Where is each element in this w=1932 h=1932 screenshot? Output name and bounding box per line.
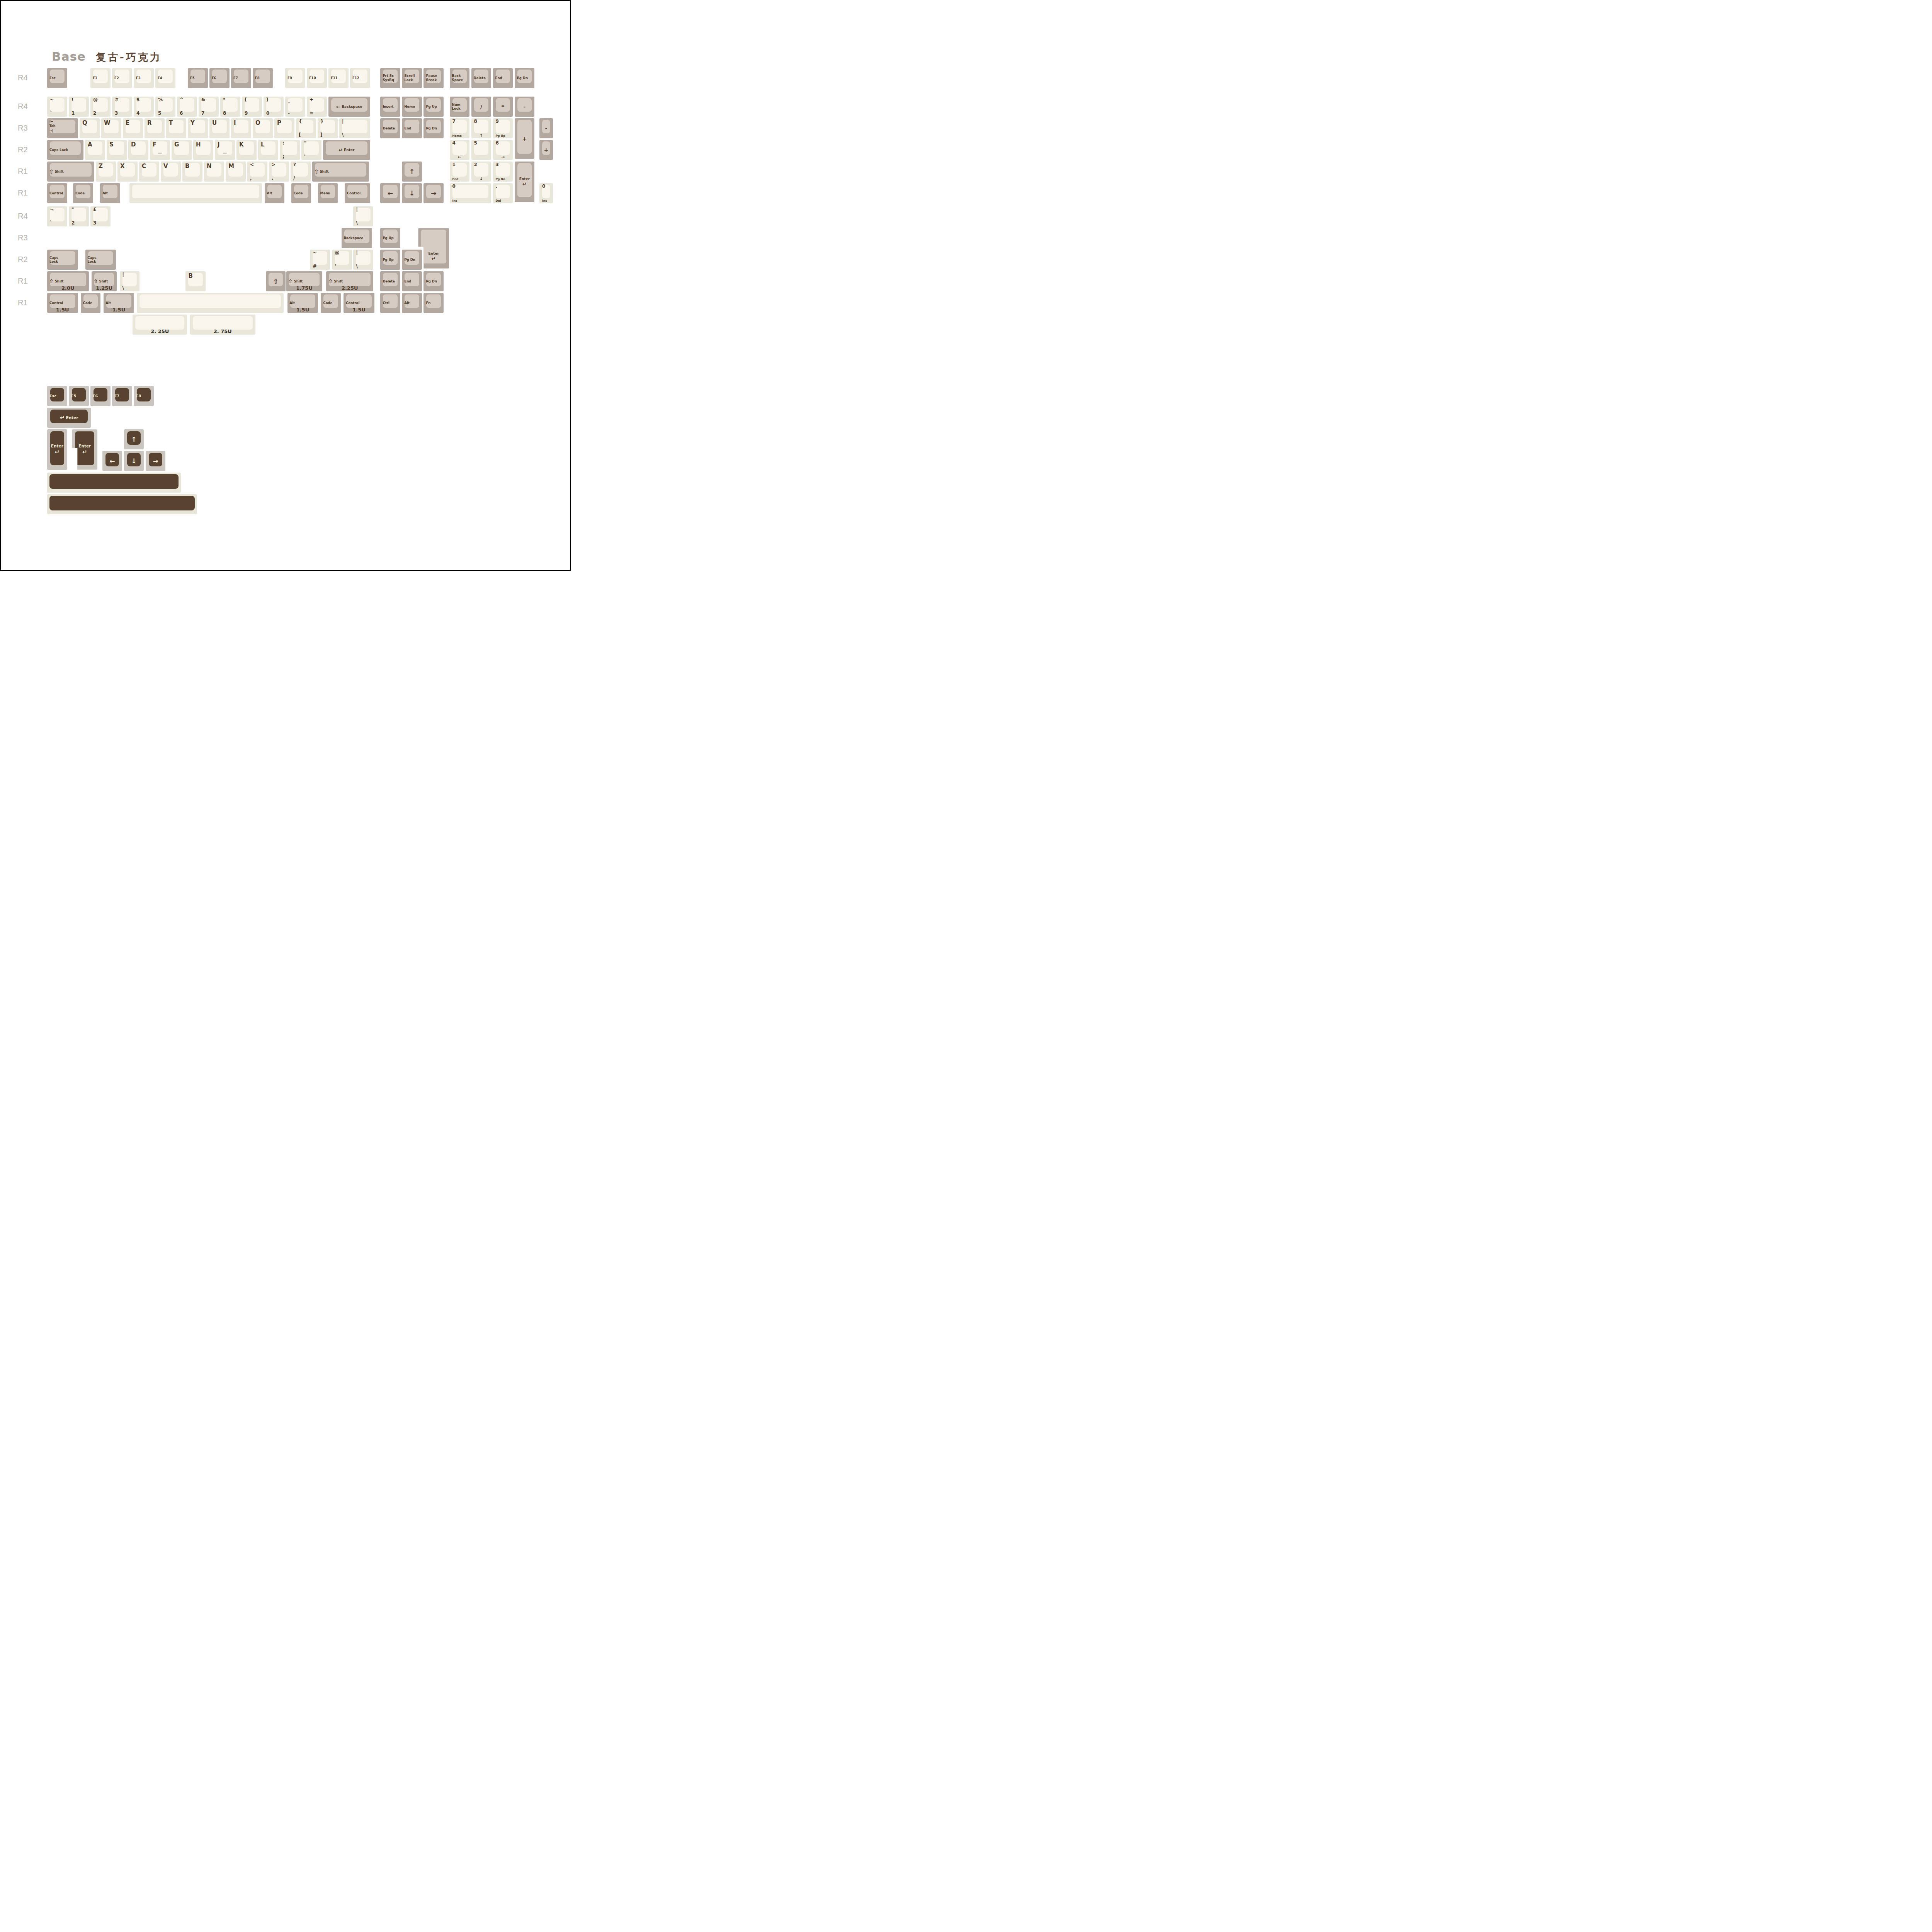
key-kp8: 8↑ [471, 118, 492, 138]
keycap-set-sheet: Base复古-巧克力 R4R4R3R2R1R1R4R3R2R1R1 EscF1F… [0, 0, 571, 571]
key-legend: M [226, 162, 246, 182]
key-legend: " [304, 140, 306, 146]
key-legend: * [493, 97, 513, 117]
key-legend: T [166, 118, 186, 138]
key-f2: F2 [112, 68, 132, 88]
key-legend: End [402, 271, 422, 291]
key-legend: ⇧ [49, 168, 54, 175]
key-legend: ! [71, 97, 73, 102]
key-legend: | [356, 250, 357, 255]
key-legend: 4 [452, 140, 456, 146]
key-alt-1u: Alt [402, 293, 422, 313]
key-legend: Pg Dn [515, 68, 535, 88]
key-legend: ↓ [124, 451, 144, 471]
key-legend: 1 [452, 162, 456, 167]
key-legend: ] [320, 132, 322, 138]
key-dark-esc: Esc [47, 386, 67, 406]
key-legend: 6 [496, 140, 499, 146]
key-legend: £ [93, 207, 96, 212]
key-f3: F3 [134, 68, 154, 88]
key-kp-dot: .Del [493, 183, 513, 203]
key-c: C [139, 162, 159, 182]
key-legend: D [128, 140, 148, 160]
key-rshift: ⇧Shift [312, 162, 369, 182]
key-insert: Insert [380, 97, 400, 117]
key-extra-caps-2: Caps Lock [85, 250, 116, 270]
key-kp5: 5 [471, 140, 492, 160]
key-legend: 5 [471, 140, 492, 160]
key-e: E [123, 118, 143, 138]
key-lctrl: Control [47, 183, 67, 203]
key-legend: Pg Dn [496, 177, 505, 181]
key-rbracket: }] [318, 118, 338, 138]
key-legend: ^6 [177, 97, 197, 117]
key-shift-glyph: ⇧ [266, 271, 286, 291]
key-legend: Fn [423, 293, 444, 313]
key-legend: Y [188, 118, 208, 138]
key-legend: (9 [242, 97, 262, 117]
key-o: O [253, 118, 273, 138]
key-b: B [182, 162, 202, 182]
key-legend: → [146, 451, 166, 471]
key-legend: → [501, 155, 505, 160]
key-num-5: %5 [155, 97, 175, 117]
key-d: D [128, 140, 148, 160]
key-legend: N [204, 162, 224, 182]
key-f10: F10 [307, 68, 327, 88]
key-shift-125u: ⇧Shift1.25U [92, 271, 117, 291]
key-f9: F9 [285, 68, 305, 88]
key-legend: → [423, 183, 444, 203]
key-legend: ⇧ [94, 278, 98, 284]
key-s: S [107, 140, 127, 160]
key-legend: 3Pg Dn [493, 162, 513, 182]
key-rctrl: Control [345, 183, 370, 203]
key-legend: ←Backspace [328, 97, 370, 117]
key-kp0: 0Ins [450, 183, 492, 203]
key-grave: ~` [47, 97, 67, 117]
key-legend: 1End [450, 162, 470, 182]
key-legend: = [310, 111, 313, 116]
key-legend: 7 [201, 111, 204, 116]
key-legend: ↵ [60, 414, 65, 421]
key-legend: 9Pg Up [493, 118, 513, 138]
key-legend: Enter [66, 415, 78, 420]
key-iso-pound-3: £3 [90, 206, 111, 226]
key-legend: @' [332, 250, 352, 270]
key-legend: ¬ [50, 207, 54, 212]
key-legend: Home [402, 97, 422, 117]
key-legend: / [293, 175, 295, 181]
key-y: Y [188, 118, 208, 138]
key-extra-end: End [402, 271, 422, 291]
key-legend: &7 [199, 97, 219, 117]
key-legend: ' [304, 154, 306, 159]
key-spacebar-225u: 2. 25U [133, 315, 187, 335]
key-legend: |\ [353, 206, 373, 226]
row-label-r1: R1 [18, 167, 28, 176]
key-legend: Pg Dn [402, 250, 422, 270]
key-arrow-up: ↑ [402, 162, 422, 182]
key-size-label: 1.5U [344, 307, 374, 313]
key-print-screen: Prt Sc SysRq [380, 68, 400, 88]
key-legend: ↵ [432, 256, 436, 262]
key-ctrl-15u-right: Control1.5U [344, 293, 374, 313]
key-legend: %5 [155, 97, 175, 117]
key-extra-pgdn-r2: Pg Dn [402, 250, 422, 270]
key-kp-multiply: * [493, 97, 513, 117]
key-q: Q [80, 118, 100, 138]
key-n: N [204, 162, 224, 182]
key-v: V [161, 162, 181, 182]
key-legend: ← [336, 104, 340, 110]
key-legend: 1 [71, 111, 75, 116]
key-legend: 0 [452, 184, 456, 189]
key-shift-175u: ⇧Shift1.75U [286, 271, 323, 291]
key-legend: Enter [344, 148, 354, 152]
key-dark-f8: F8 [134, 386, 154, 406]
key-legend: 4← [450, 140, 470, 160]
key-legend: Pg Up [423, 97, 444, 117]
key-extra-caps-1: Caps Lock [47, 250, 78, 270]
key-code-left: Code [81, 293, 101, 313]
key-kp-divide: / [471, 97, 492, 117]
key-legend: Del [496, 199, 501, 202]
row-label-r2: R2 [18, 255, 28, 264]
key-f4: F4 [155, 68, 175, 88]
key-legend: $ [136, 97, 139, 102]
key-legend: += [307, 97, 327, 117]
key-lshift: ⇧Shift [47, 162, 94, 182]
key-legend: 9 [496, 119, 499, 124]
key-pgdn-top: Pg Dn [515, 68, 535, 88]
key-legend: 3 [93, 220, 96, 226]
key-legend: K [236, 140, 257, 160]
key-legend: Alt [265, 183, 285, 203]
key-lbracket: {[ [296, 118, 316, 138]
key-legend: 4 [136, 111, 139, 116]
key-legend: ↓ [402, 183, 422, 203]
key-legend: Q [80, 118, 100, 138]
key-legend: !1 [69, 97, 89, 117]
key-legend: Backspace [342, 228, 372, 248]
key-legend: \ [356, 264, 357, 269]
key-size-label: 2. 75U [190, 329, 255, 335]
key-legend: 2 [71, 220, 75, 226]
key-g: G [172, 140, 192, 160]
key-h: H [193, 140, 213, 160]
key-legend: Shift [99, 279, 108, 283]
key-legend: H [193, 140, 213, 160]
key-legend: Enter [429, 252, 439, 255]
key-legend: Shift [320, 170, 329, 173]
key-legend: "2 [69, 206, 89, 226]
key-legend: Control [345, 183, 370, 203]
key-legend: - [515, 97, 535, 117]
key-legend: 9 [245, 111, 248, 116]
key-f11: F11 [328, 68, 349, 88]
row-label-r1: R1 [18, 277, 28, 286]
key-legend: ~ [50, 97, 54, 102]
key-legend: Code [291, 183, 311, 203]
key-legend: "' [301, 140, 321, 160]
key-legend: . [496, 184, 498, 189]
key-dark-f7: F7 [112, 386, 132, 406]
row-label-r3: R3 [18, 233, 28, 242]
key-kp4: 4← [450, 140, 470, 160]
key-enter: ↵Enter [323, 140, 370, 160]
key-legend: ) [266, 97, 268, 102]
key-legend: Ins [452, 199, 457, 202]
key-legend [129, 183, 262, 203]
key-legend: ↵ [522, 181, 527, 187]
key-legend: 6 [180, 111, 183, 116]
key-dark-spacebar-625u [47, 473, 181, 493]
key-esc: Esc [47, 68, 67, 88]
key-legend: 5 [158, 111, 161, 116]
key-kp-subtract: - [515, 97, 535, 117]
key-spacebar [129, 183, 262, 203]
key-extra-pipe-r4: |\ [353, 206, 373, 226]
key-pgup: Pg Up [423, 97, 444, 117]
key-lcode: Code [73, 183, 93, 203]
key-t: T [166, 118, 186, 138]
key-legend: Alt [100, 183, 120, 203]
key-num-lock: Num Lock [450, 97, 470, 117]
key-legend: + [539, 140, 553, 160]
key-delete: Delete [380, 118, 400, 138]
key-legend: \ [356, 220, 357, 226]
key-legend: & [201, 97, 205, 102]
key-legend: Enter [51, 444, 63, 448]
key-legend: @2 [90, 97, 111, 117]
key-kp9: 9Pg Up [493, 118, 513, 138]
key-f7: F7 [231, 68, 251, 88]
key-extra-b: B [185, 271, 206, 291]
key-a: A [85, 140, 105, 160]
key-legend: _ [288, 97, 290, 102]
key-minus: _- [285, 97, 305, 117]
row-label-r1: R1 [18, 189, 28, 197]
key-f5: F5 [188, 68, 208, 88]
key-legend: * [223, 97, 225, 102]
key-legend: I [231, 118, 251, 138]
key-legend: E [123, 118, 143, 138]
key-code-right: Code [321, 293, 341, 313]
key-arrow-right: → [423, 183, 444, 203]
key-extra-pgdn-r1: Pg Dn [423, 271, 444, 291]
key-legend: | [122, 272, 124, 277]
key-f12: F12 [350, 68, 370, 88]
key-legend [47, 473, 181, 493]
key-legend: *8 [220, 97, 240, 117]
key-legend: {[ [296, 118, 316, 138]
key-legend: : [282, 140, 284, 146]
key-legend: End [452, 177, 459, 181]
key-legend: ( [245, 97, 247, 102]
key-legend: Caps Lock [47, 250, 78, 270]
key-num-7: &7 [199, 97, 219, 117]
key-kp2: 2↓ [471, 162, 492, 182]
key-ralt: Alt [265, 183, 285, 203]
key-legend: / [471, 97, 492, 117]
key-legend: 0 [542, 184, 545, 189]
key-extra-pipe-r2: |\ [353, 250, 373, 270]
key-iso-not-grave: ¬` [47, 206, 67, 226]
key-legend: Delete [380, 118, 400, 138]
key-rcode: Code [291, 183, 311, 203]
key-legend: End [402, 118, 422, 138]
key-legend: ; [282, 154, 284, 159]
key-kp3: 3Pg Dn [493, 162, 513, 182]
key-legend: ~` [47, 97, 67, 117]
key-end: End [402, 118, 422, 138]
key-tab: |←Tab→| [47, 118, 78, 138]
key-legend: # [313, 264, 316, 269]
key-f6: F6 [209, 68, 230, 88]
row-label-r4: R4 [18, 212, 28, 221]
key-legend: Menu [318, 183, 338, 203]
key-legend: } [320, 119, 324, 124]
key-comma: <, [247, 162, 267, 182]
key-legend: Shift [294, 279, 303, 283]
key-legend: Pause Break [423, 68, 444, 88]
key-backspace: ←Backspace [328, 97, 370, 117]
key-legend: Caps Lock [85, 250, 116, 270]
key-num-6: ^6 [177, 97, 197, 117]
key-legend: |\ [353, 250, 373, 270]
key-legend: F12 [350, 68, 370, 88]
key-legend: Ins [542, 199, 547, 202]
key-legend: }] [318, 118, 338, 138]
key-legend: 7 [452, 119, 456, 124]
key-backslash: |\ [339, 118, 370, 138]
key-u: U [209, 118, 230, 138]
key-z: Z [96, 162, 116, 182]
key-legend: ⇧Shift [312, 162, 369, 182]
key-legend: 2 [93, 111, 96, 116]
key-legend: 0Ins [539, 183, 553, 203]
key-legend: ↵ [82, 449, 87, 456]
key-legend: |\ [120, 271, 140, 291]
key-legend: F4 [155, 68, 175, 88]
key-legend: B [185, 271, 206, 291]
key-x: X [117, 162, 138, 182]
key-legend: ↵Enter [323, 140, 370, 160]
key-legend: ↵ [338, 147, 343, 153]
key-legend: 0Ins [450, 183, 492, 203]
key-legend: 7Home [450, 118, 470, 138]
row-label-r2: R2 [18, 145, 28, 154]
key-legend: Delete [471, 68, 492, 88]
key-dark-f6: F6 [90, 386, 111, 406]
key-legend: Tab [49, 124, 78, 129]
row-label-r3: R3 [18, 124, 28, 133]
key-alt-15u-left: Alt1.5U [104, 293, 134, 313]
key-legend: R [145, 118, 165, 138]
key-legend: Control [47, 183, 67, 203]
key-legend: Home [452, 134, 462, 138]
key-legend: ⇧ [328, 278, 333, 284]
key-legend: > [272, 162, 276, 167]
key-legend: 6→ [493, 140, 513, 160]
key-shift-2u: ⇧Shift2.0U [47, 271, 89, 291]
key-legend: ⇧Shift [47, 162, 94, 182]
key-legend: ↓ [480, 176, 483, 181]
key-i: I [231, 118, 251, 138]
key-legend: ⇧ [266, 271, 286, 291]
key-legend: Enter↵ [418, 245, 449, 269]
key-arrow-left: ← [380, 183, 400, 203]
key-legend: ← [102, 451, 122, 471]
key-size-label: 1.75U [286, 286, 323, 291]
key-legend: , [250, 175, 252, 181]
key-alt-15u-right: Alt1.5U [287, 293, 318, 313]
key-legend: ↑ [402, 162, 422, 182]
key-size-label: 1.5U [47, 307, 78, 313]
key-legend: Esc [47, 386, 67, 406]
key-home: Home [402, 97, 422, 117]
key-iso-tilde-hash: ~# [310, 250, 330, 270]
key-legend: →| [49, 129, 78, 133]
key-legend: W [101, 118, 121, 138]
key-legend: F7 [231, 68, 251, 88]
key-legend: Prt Sc SysRq [380, 68, 400, 88]
key-legend: | [342, 119, 344, 124]
key-legend: F8 [134, 386, 154, 406]
key-legend: End [493, 68, 513, 88]
key-kp6: 6→ [493, 140, 513, 160]
key-legend: { [299, 119, 302, 124]
key-caps-lock: Caps Lock [47, 140, 83, 160]
key-slash: ?/ [291, 162, 311, 182]
key-legend: F1 [90, 68, 111, 88]
key-legend: O [253, 118, 273, 138]
key-num-9: (9 [242, 97, 262, 117]
key-legend: | [356, 207, 357, 212]
key-legend: Shift [334, 279, 343, 283]
key-legend: 2↓ [471, 162, 492, 182]
key-legend: J [215, 140, 235, 160]
key-legend: Enter↵ [72, 429, 97, 469]
key-num-4: $4 [134, 97, 154, 117]
key-extra-minus: - [539, 118, 553, 138]
key-legend: Pg Up [380, 228, 400, 248]
key-extra-pgup-r3: Pg Up [380, 228, 400, 248]
key-num-1: !1 [69, 97, 89, 117]
key-legend: < [250, 162, 254, 167]
key-dark-iso-enter: Enter↵ [72, 429, 97, 469]
key-legend [47, 494, 197, 514]
key-legend: Insert [380, 97, 400, 117]
key-legend: - [288, 111, 290, 116]
key-legend: Caps Lock [47, 140, 83, 160]
key-legend: F10 [307, 68, 327, 88]
key-legend: 2 [474, 162, 477, 167]
key-legend: % [158, 97, 163, 102]
key-f: F [150, 140, 170, 160]
key-legend: Pg Dn [423, 271, 444, 291]
key-equals: += [307, 97, 327, 117]
key-j: J [215, 140, 235, 160]
key-spacebar-275u: 2. 75U [190, 315, 255, 335]
key-legend: Alt [402, 293, 422, 313]
key-legend: " [71, 207, 74, 212]
key-size-label: 2.0U [47, 286, 89, 291]
key-legend: Esc [47, 68, 67, 88]
key-legend: Delete [380, 271, 400, 291]
key-legend: Enter [78, 444, 91, 448]
